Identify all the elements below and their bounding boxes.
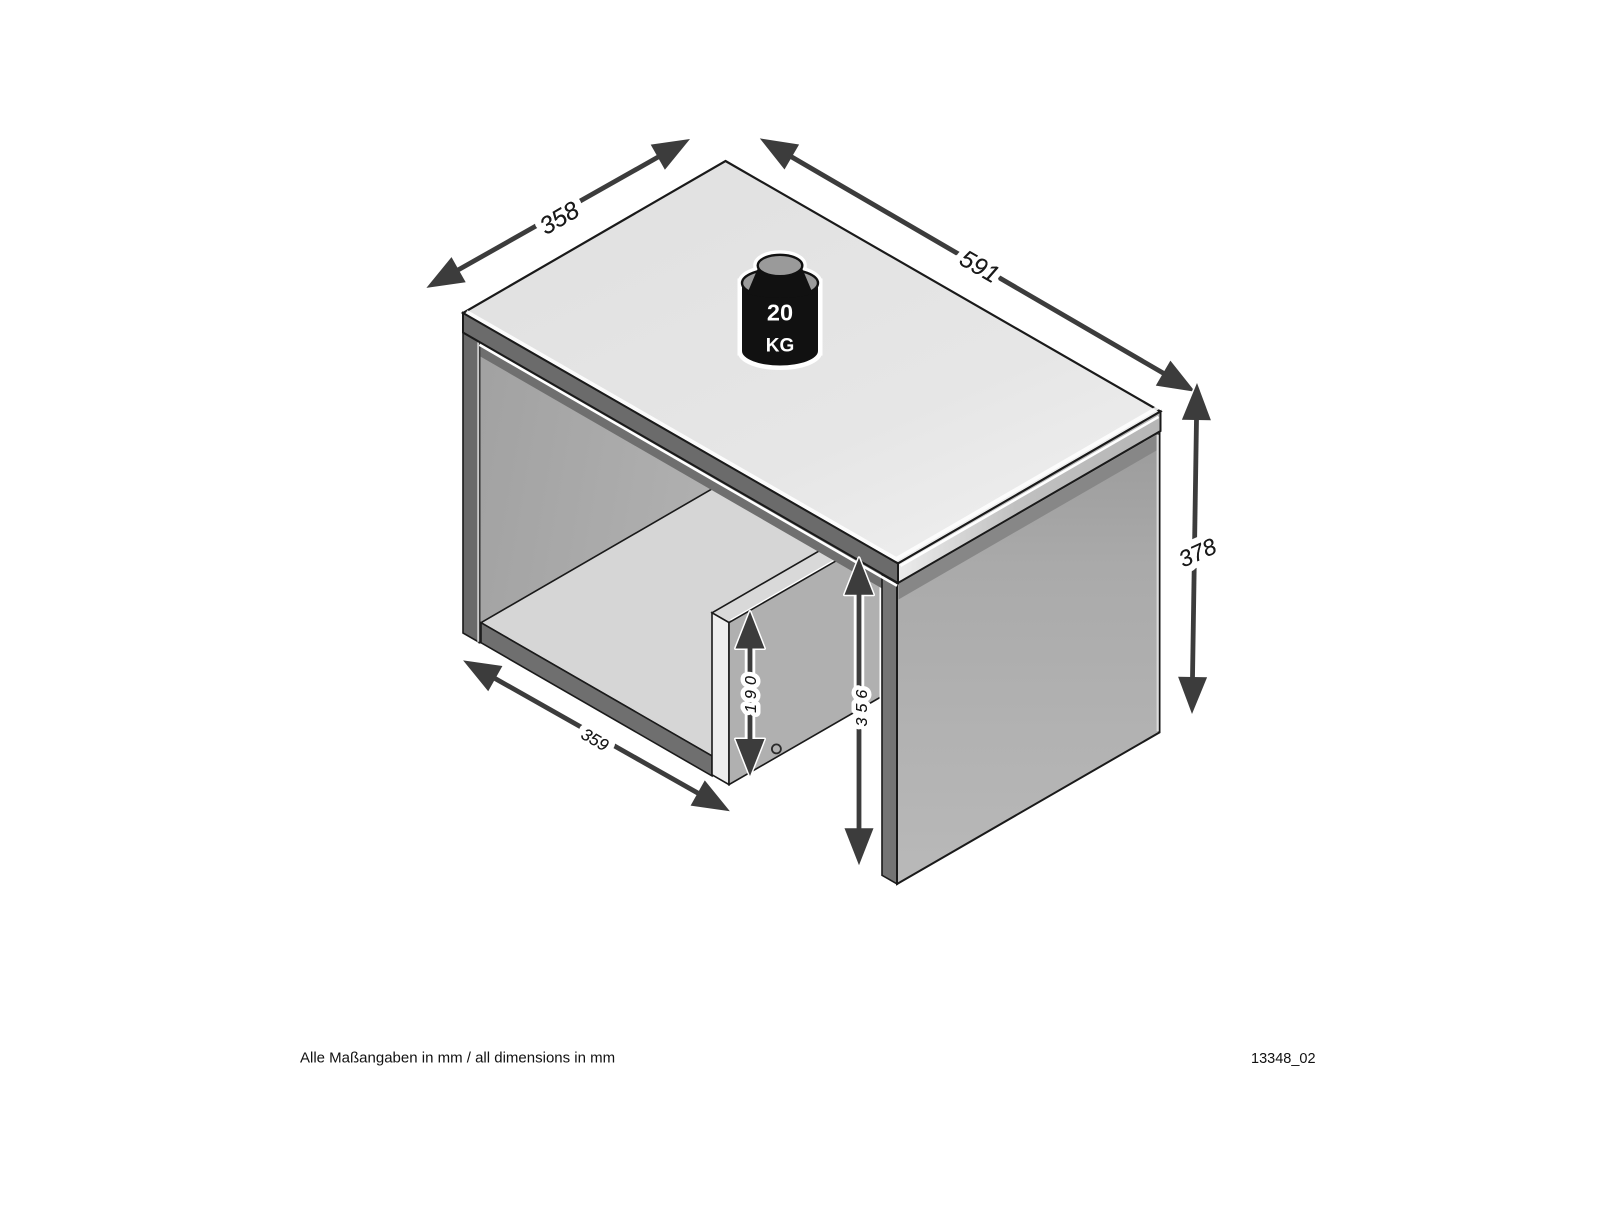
svg-text:Alle Maßangaben in mm / all di: Alle Maßangaben in mm / all dimensions i… — [300, 1050, 615, 1067]
svg-text:356: 356 — [854, 685, 871, 727]
svg-text:20: 20 — [767, 300, 793, 326]
svg-text:13348_02: 13348_02 — [1251, 1051, 1316, 1067]
svg-text:190: 190 — [743, 671, 760, 713]
svg-text:KG: KG — [766, 336, 795, 357]
